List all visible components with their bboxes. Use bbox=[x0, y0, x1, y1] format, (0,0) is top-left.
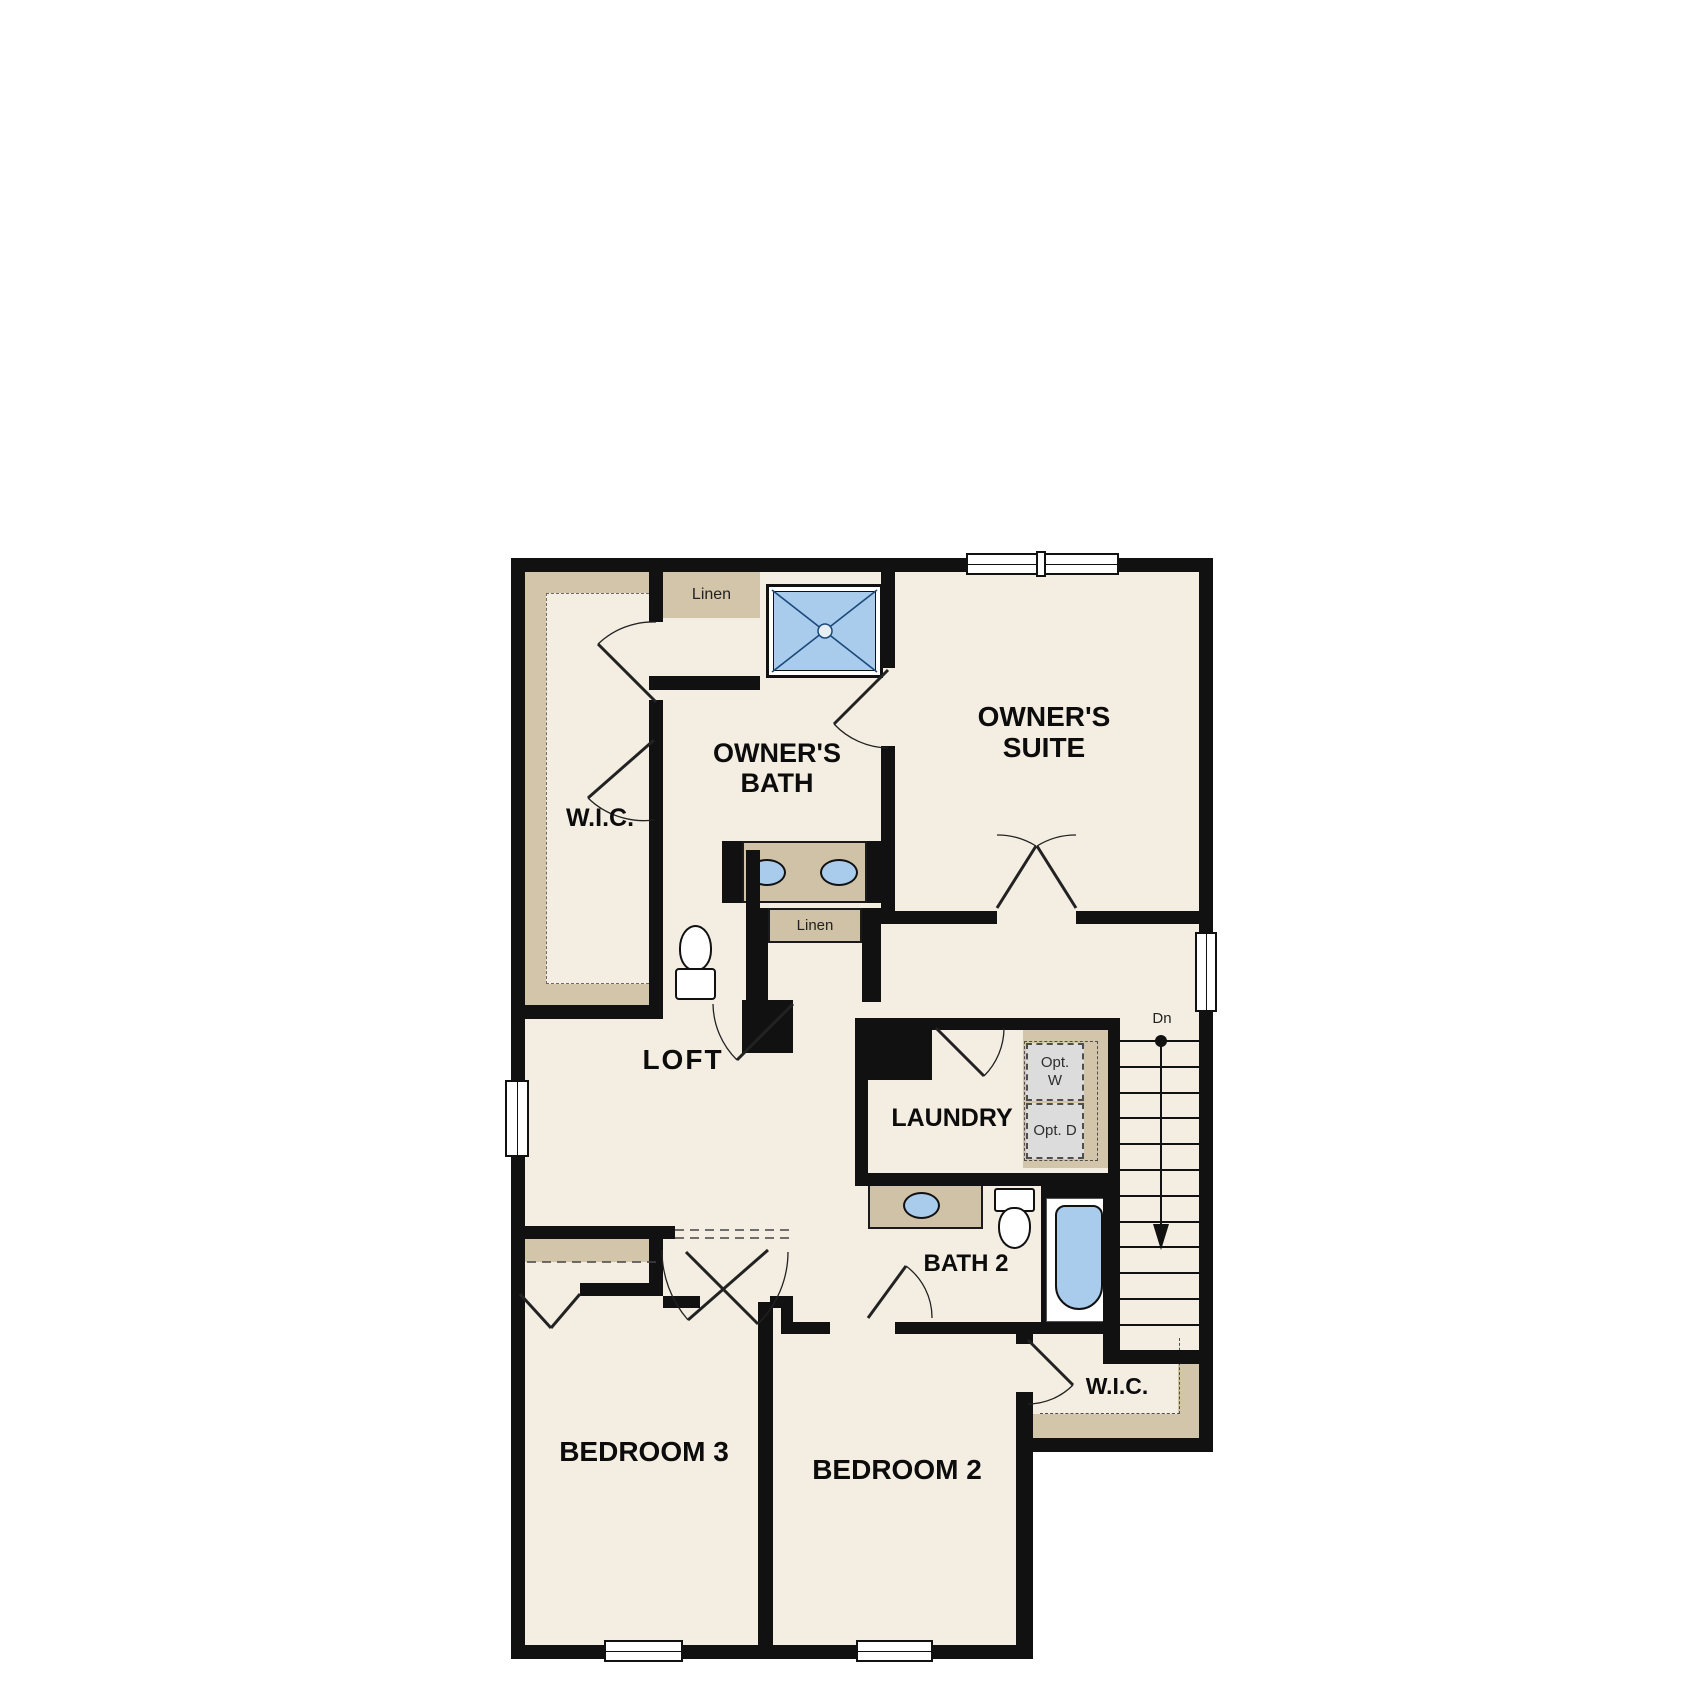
label-dn: Dn bbox=[1146, 1010, 1178, 1027]
label-owners-suite: OWNER'S SUITE bbox=[949, 701, 1139, 763]
label-bedroom2: BEDROOM 2 bbox=[797, 1454, 997, 1486]
floorplan-canvas: Opt. W Opt. D bbox=[0, 0, 1700, 1688]
label-bedroom3: BEDROOM 3 bbox=[544, 1436, 744, 1468]
label-wic-top: W.I.C. bbox=[540, 804, 660, 833]
label-linen-mid: Linen bbox=[768, 917, 862, 934]
label-linen-top: Linen bbox=[663, 586, 760, 604]
plan-linework bbox=[0, 0, 1700, 1688]
label-bath2: BATH 2 bbox=[921, 1250, 1011, 1277]
label-loft: LOFT bbox=[613, 1044, 753, 1076]
label-owners-bath: OWNER'S BATH bbox=[697, 738, 857, 798]
label-wic-bottom: W.I.C. bbox=[1057, 1373, 1177, 1400]
label-laundry: LAUNDRY bbox=[877, 1104, 1027, 1133]
